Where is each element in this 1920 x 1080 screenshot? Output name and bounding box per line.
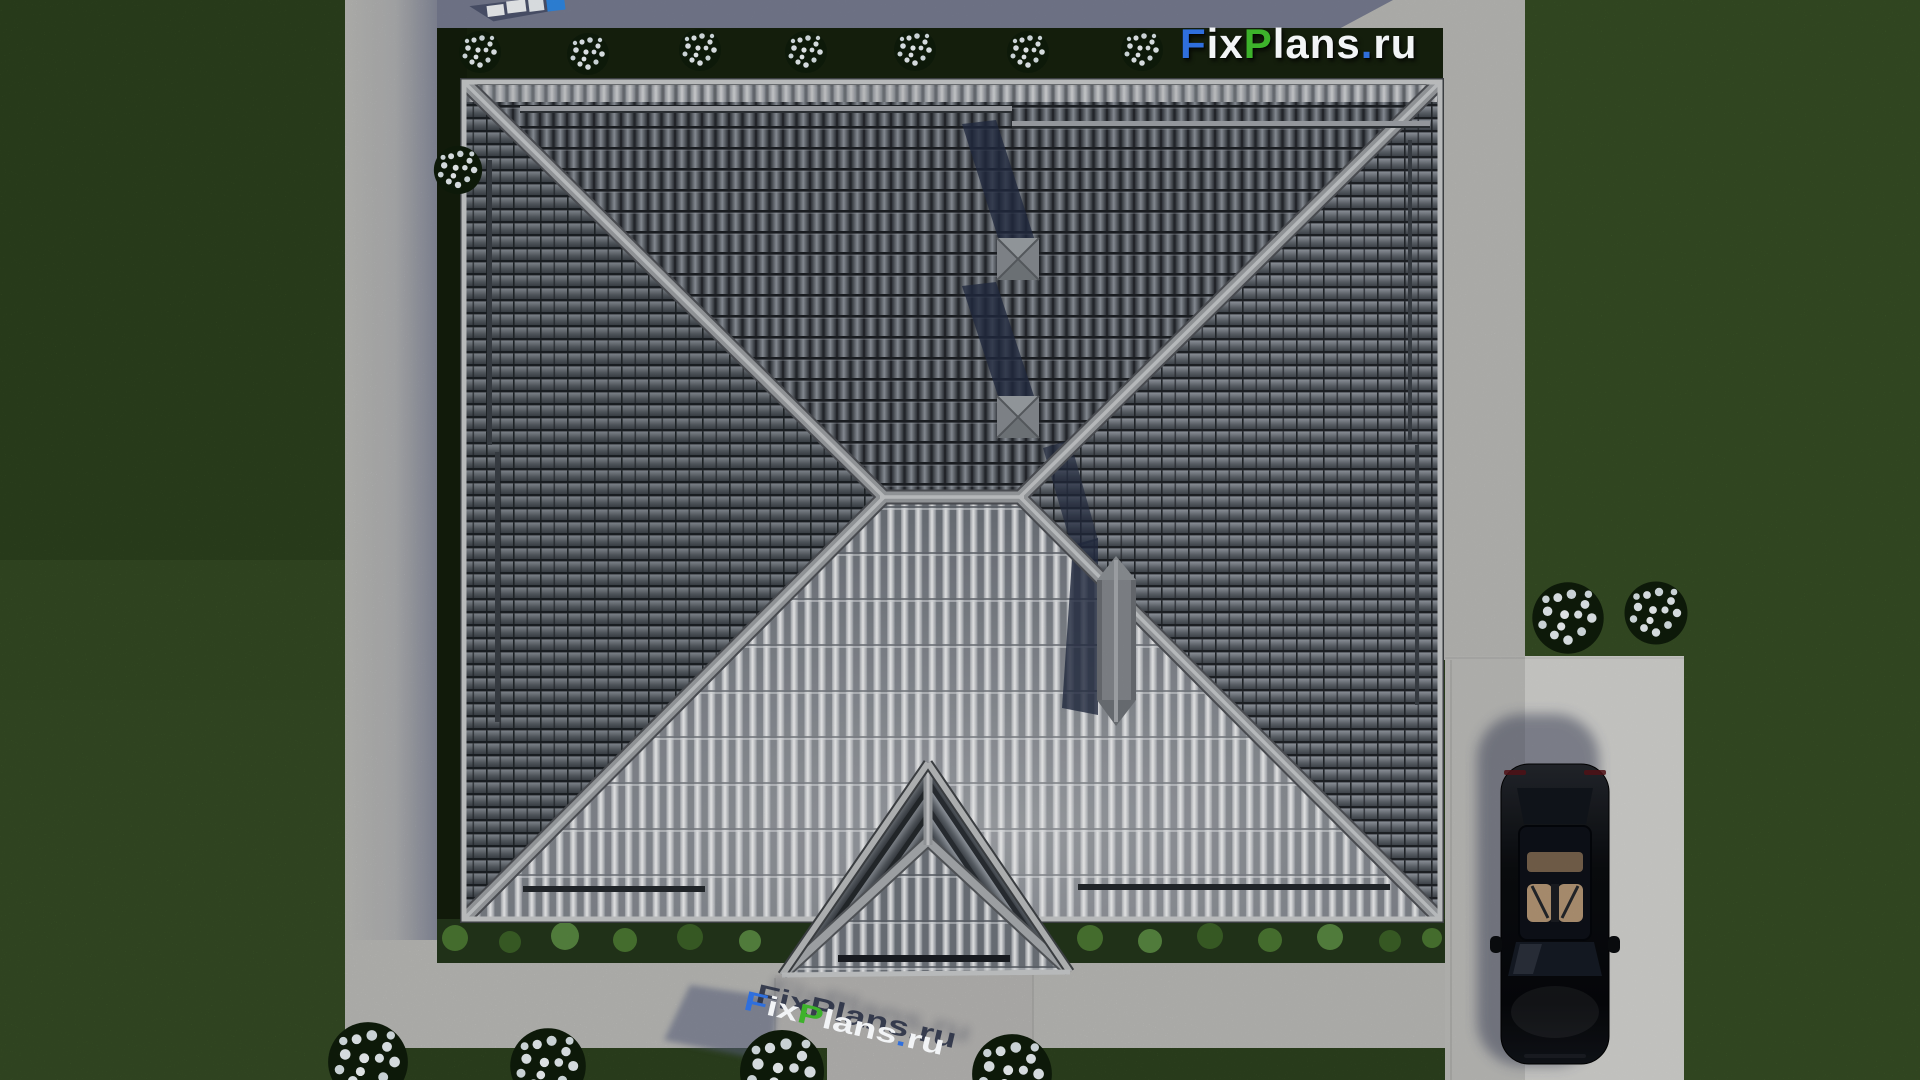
logo-letters-ru: ru [1373, 20, 1417, 67]
logo-letter-f: F [1180, 20, 1207, 67]
logo-letter-p: P [1244, 20, 1273, 67]
logo-letters-lans: lans [1273, 20, 1361, 67]
render-viewport: FixPlans.ru FixPlans.ru [0, 0, 1920, 1080]
fixplans-logo-watermark: FixPlans.ru [1180, 20, 1417, 68]
film-grain-overlay [0, 0, 1920, 1080]
logo-letters-ix: ix [1207, 20, 1244, 67]
logo-dot: . [1361, 20, 1374, 67]
scene-render [0, 0, 1920, 1080]
